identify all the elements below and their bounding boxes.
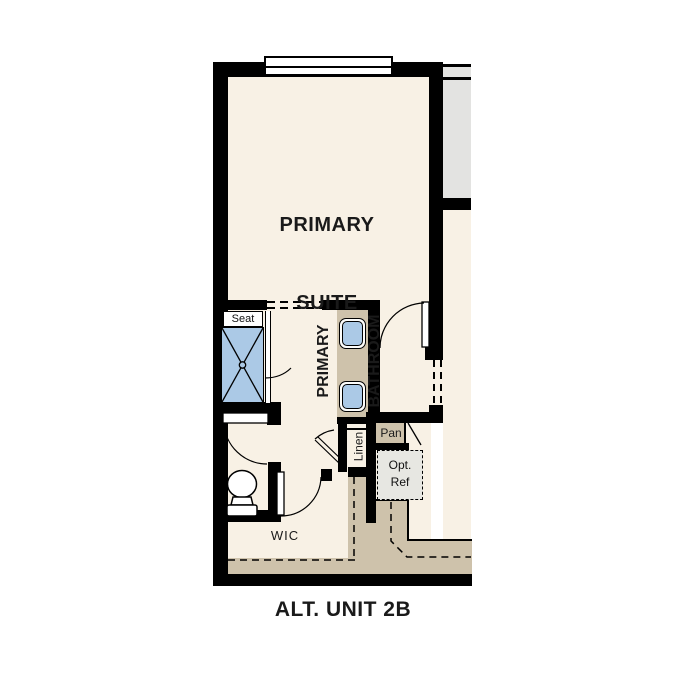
- wic-label: WIC: [255, 528, 315, 543]
- primary-bathroom-label: PRIMARY BATHROOM: [281, 306, 315, 416]
- adjacent-gray-area: [443, 64, 471, 198]
- plan-title: ALT. UNIT 2B: [213, 598, 473, 622]
- wall-shower-south: [213, 402, 267, 413]
- pantry-label: Pan: [376, 426, 406, 440]
- wall-pantry-south: [371, 443, 409, 450]
- kitchen-counter-vertical: [376, 501, 408, 574]
- linen-label: Linen: [352, 425, 365, 469]
- wall-toilet-south: [213, 510, 281, 522]
- primary-bathroom-label-line1: PRIMARY: [315, 306, 332, 416]
- counter-inner-vertical-edge: [407, 500, 409, 541]
- wall-shower-stub: [267, 402, 281, 425]
- wall-linen-west: [338, 422, 347, 472]
- adjacent-room-floor: [443, 203, 471, 574]
- wall-bottom: [213, 574, 472, 586]
- wall-right-suite: [429, 62, 443, 360]
- primary-bathroom-label-line2: BATHROOM: [366, 306, 383, 416]
- wall-linen-south: [348, 467, 366, 477]
- suite-window: [264, 56, 393, 76]
- cased-opening-floor: [429, 355, 443, 410]
- adjacent-window-line-1: [443, 64, 471, 67]
- counter-inner-horizontal-edge: [407, 539, 472, 541]
- adjacent-window-line-2: [443, 77, 471, 80]
- floor-plan: Seat Opt. Ref: [0, 0, 687, 687]
- opt-ref-label-line1: Opt.: [378, 457, 422, 474]
- wall-wic-door-jamb: [321, 469, 332, 481]
- wic-builtin-band: [228, 558, 368, 574]
- wall-gray-area-bottom: [443, 198, 471, 210]
- wall-hall-door-jamb: [425, 347, 443, 360]
- kitchen-counter-horizontal: [408, 541, 472, 574]
- primary-suite-label-line1: PRIMARY: [247, 212, 407, 238]
- window-mullion-line: [266, 66, 391, 68]
- opt-ref-label-line2: Ref: [378, 474, 422, 491]
- wall-linen-east: [366, 412, 376, 523]
- optional-refrigerator: Opt. Ref: [377, 450, 423, 500]
- wall-toilet-east: [268, 462, 281, 512]
